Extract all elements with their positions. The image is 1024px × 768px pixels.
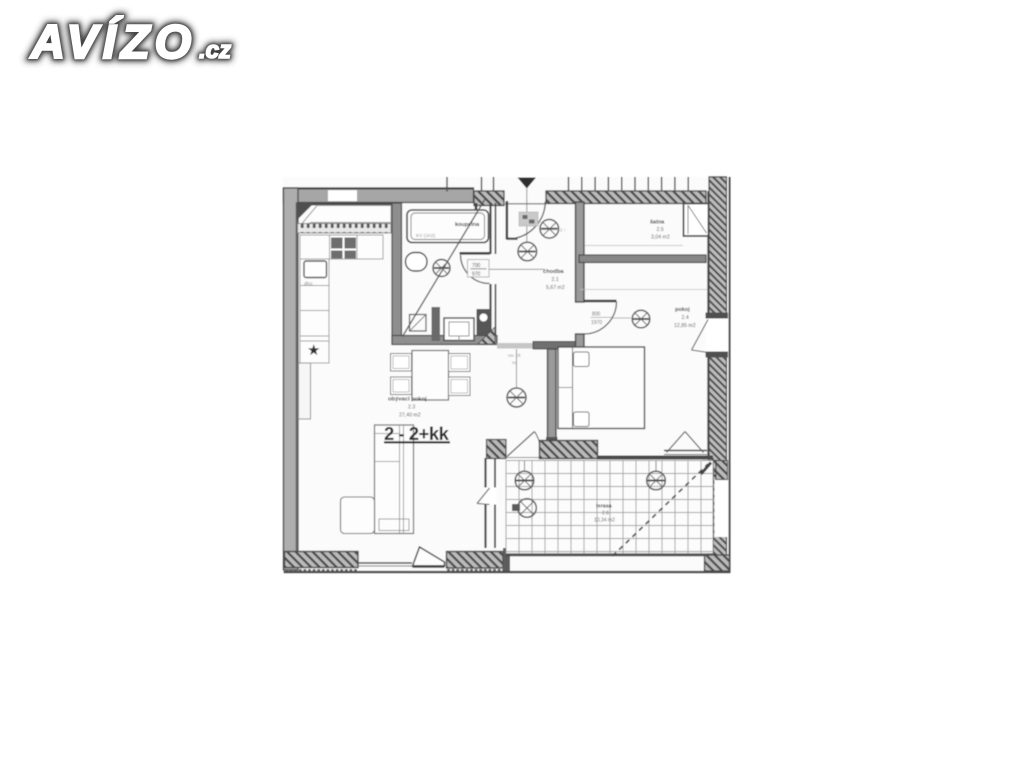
svg-text:5,67 m2: 5,67 m2	[546, 285, 565, 291]
svg-text:mn 1/lt: mn 1/lt	[508, 353, 521, 358]
svg-text:2.4: 2.4	[682, 315, 689, 321]
svg-text:ne: ne	[512, 360, 517, 365]
svg-text:chodba: chodba	[543, 269, 564, 275]
svg-text:★: ★	[307, 342, 320, 359]
svg-text:3,04 m2: 3,04 m2	[651, 235, 670, 241]
svg-text:obývací pokoj: obývací pokoj	[388, 397, 427, 403]
svg-text:1970: 1970	[591, 320, 602, 326]
svg-text:2.3: 2.3	[408, 405, 415, 411]
svg-text:pokoj: pokoj	[675, 307, 690, 313]
svg-text:dřez: dřez	[304, 281, 314, 286]
svg-text:2.6: 2.6	[602, 511, 609, 517]
svg-text:2 ↑: 2 ↑	[560, 228, 566, 233]
svg-text:10,34 m2: 10,34 m2	[594, 518, 615, 524]
svg-text:27,40 m2: 27,40 m2	[399, 413, 421, 419]
svg-text:970: 970	[472, 272, 481, 278]
svg-text:2 - 2+kk: 2 - 2+kk	[384, 423, 450, 444]
svg-text:2.1: 2.1	[552, 277, 559, 283]
svg-text:terasa: terasa	[596, 504, 612, 510]
svg-text:2.5: 2.5	[657, 227, 664, 233]
svg-text:AVÍZO: AVÍZO	[30, 15, 196, 68]
svg-text:800: 800	[592, 312, 601, 318]
svg-text:šatna: šatna	[650, 220, 665, 226]
svg-text:12,85 m2: 12,85 m2	[674, 323, 696, 329]
svg-text:.cz: .cz	[199, 37, 231, 64]
svg-text:700: 700	[472, 263, 481, 269]
svg-text:KV (JA2): KV (JA2)	[416, 233, 436, 239]
